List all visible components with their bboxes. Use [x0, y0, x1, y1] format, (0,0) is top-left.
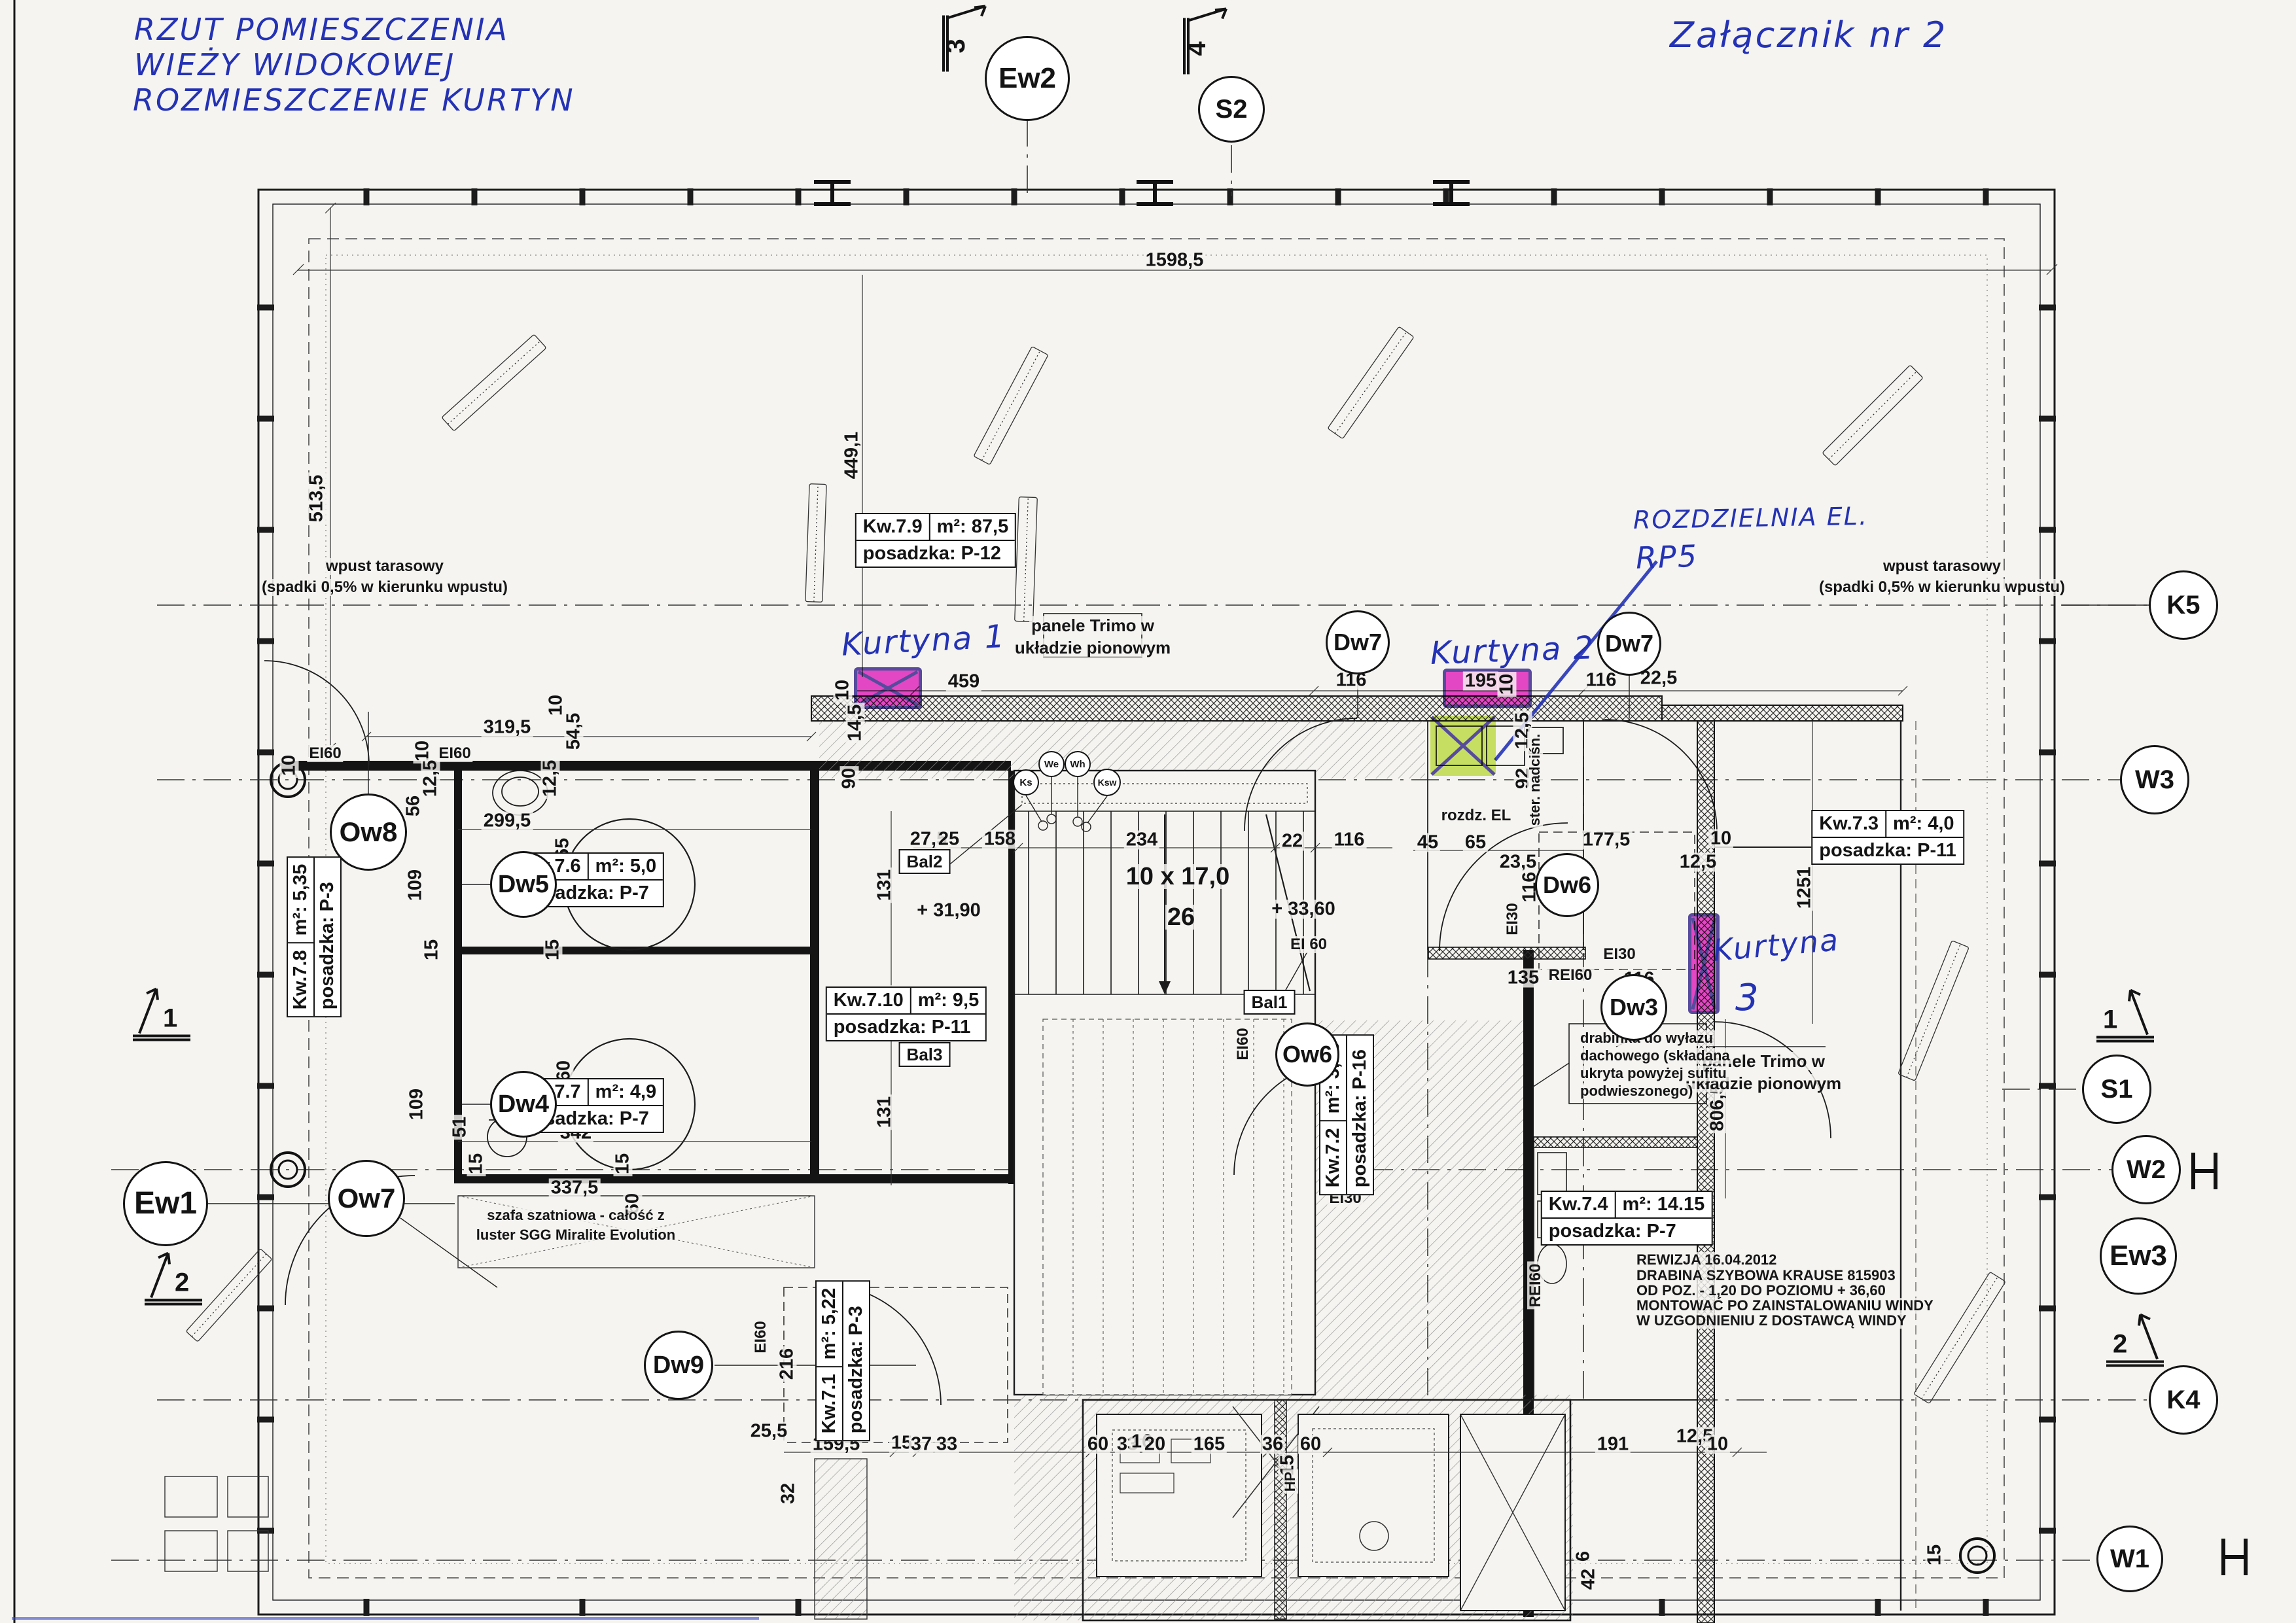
dim-label: 216: [778, 1346, 797, 1382]
handwritten-note: Kurtyna 2: [1430, 632, 1595, 669]
room-id: Kw.7.9: [857, 514, 930, 540]
room-label-row: Kw.7.7m²: 4,9: [515, 1079, 663, 1106]
axis-bubble: Dw7: [1597, 612, 1661, 676]
axis-bubble: Ew2: [985, 36, 1070, 121]
dim-label: 36: [1260, 1435, 1285, 1454]
annotation: EI30: [1601, 946, 1637, 963]
annotation: ster. nadciśn.: [1527, 732, 1543, 828]
dim-label: 20: [1142, 1435, 1167, 1454]
dim-label: 23,5: [1498, 853, 1538, 872]
dim-label: 15: [467, 1151, 486, 1176]
floor-plan-sheet: 1598,5513,5449,14591161951011622,5319,51…: [0, 0, 2296, 1623]
room-label-row: Kw.7.6m²: 5,0: [515, 854, 663, 881]
annotation: EI 60: [1288, 936, 1329, 953]
axis-bubble: W3: [2120, 745, 2189, 814]
dim-label: 160: [555, 1058, 574, 1094]
section-marker: 2: [134, 1243, 219, 1312]
dim-label: 10: [1498, 672, 1517, 697]
handwritten-note: RP5: [1635, 541, 1699, 573]
svg-text:1: 1: [2103, 1005, 2117, 1034]
handwritten-note: ROZDZIELNIA EL.: [1633, 504, 1869, 532]
room-label: Kw.7.7m²: 4,9posadzka: P-7: [514, 1078, 664, 1133]
room-label: Kw.7.4m²: 14.15posadzka: P-7: [1541, 1191, 1713, 1246]
room-label-row: Kw.7.2m²: 3,15: [1320, 1036, 1347, 1194]
dim-label: 65: [1463, 833, 1488, 852]
dim-label: 15: [423, 937, 442, 962]
dim-label: 56: [404, 794, 423, 818]
room-id: Kw.7.7: [515, 1079, 589, 1105]
dim-label: 42: [1580, 1567, 1598, 1592]
room-label: Kw.7.6m²: 5,0posadzka: P-7: [514, 852, 664, 907]
dim-label: 10: [547, 693, 566, 718]
section-marker: 3: [921, 3, 1000, 79]
annotation: EI60: [307, 745, 343, 762]
handwritten-note: 3: [1735, 980, 1760, 1017]
annotation: EI30: [1504, 901, 1521, 937]
dim-label: 319,5: [482, 718, 533, 737]
room-floor: posadzka: P-3: [843, 1282, 869, 1440]
annotation: rozdz. EL: [1439, 807, 1513, 824]
room-floor: posadzka: P-16: [1347, 1036, 1373, 1194]
dim-label: 158: [982, 830, 1017, 849]
section-marker: 2: [2089, 1304, 2174, 1373]
dim-label: 54,5: [565, 711, 584, 752]
room-id: Kw.7.2: [1320, 1120, 1346, 1194]
annotation: EI30: [1327, 1190, 1363, 1207]
dim-label: 165: [1192, 1435, 1227, 1454]
room-id: Kw.7.1: [817, 1366, 842, 1440]
dim-label: 513,5: [308, 473, 327, 525]
highlight-magenta: [1443, 669, 1532, 708]
room-area: m²: 5,35: [288, 858, 313, 943]
plan-linework: [0, 0, 2296, 1623]
dim-label: 109: [406, 867, 425, 903]
section-marker: 1: [2079, 980, 2164, 1049]
annotation: (spadki 0,5% w kierunku wpustu): [260, 579, 510, 596]
annotation: dachowego (składana: [1578, 1048, 1732, 1064]
dim-label: 14,5: [846, 703, 865, 743]
dim-label: 51: [451, 1115, 470, 1140]
dim-label: 12,5: [421, 758, 440, 799]
dim-label: 159,5: [811, 1435, 862, 1454]
dim-label: 60: [624, 1191, 643, 1216]
dim-label: 360: [287, 903, 306, 939]
annotation: panele Trimo w: [1700, 1052, 1827, 1070]
attachment-note: Załącznik nr 2: [1670, 14, 1947, 56]
dim-label: 195: [1463, 672, 1498, 691]
room-id: Kw.7.4: [1542, 1192, 1616, 1217]
handwritten-note: Kurtyna: [1712, 924, 1841, 966]
svg-text:2: 2: [2113, 1330, 2127, 1359]
dim-label: 6: [1574, 1549, 1593, 1563]
dim-label: 116: [1332, 831, 1367, 850]
handwritten-note: Kurtyna 1: [841, 621, 1006, 661]
annotation: REI60: [1547, 967, 1595, 984]
dim-label: 116: [1622, 970, 1657, 989]
dim-label: 135: [1506, 969, 1541, 988]
annotation: OD POZ. - 1,20 DO POZIOMU + 36,60: [1634, 1283, 1888, 1299]
dim-label: 26: [1165, 905, 1197, 930]
section-marker: 4: [1162, 5, 1241, 82]
annotation: ukryta powyżej sufitu: [1578, 1066, 1729, 1081]
annotation: EI60: [752, 1319, 769, 1355]
symbol-bubble: Ksw: [1093, 769, 1121, 796]
dim-label: 165: [554, 836, 573, 871]
symbol-bubble: Wh: [1065, 751, 1091, 777]
dim-label: 25: [936, 830, 961, 849]
dim-label: 25,5: [749, 1422, 789, 1441]
dim-label: 22: [1280, 832, 1305, 851]
dim-label: 116: [1334, 671, 1369, 690]
dim-label: 12,5: [1674, 1427, 1715, 1446]
sheet-title-line-1: RZUT POMIESZCZENIA: [134, 12, 509, 47]
axis-bubble: Dw7: [1326, 610, 1390, 674]
dim-label: 342: [558, 1124, 593, 1143]
dim-label: 131: [875, 867, 894, 903]
axis-bubble: Ow8: [330, 794, 407, 871]
dim-label: 10: [1705, 1435, 1730, 1454]
room-floor: posadzka: P-11: [1812, 838, 1963, 864]
annotation: Bal2: [899, 849, 951, 874]
dim-label: 27,5: [908, 830, 949, 849]
dim-label: 12,5: [1513, 710, 1532, 751]
room-area: m²: 87,5: [930, 514, 1016, 540]
highlight-magenta: [854, 667, 922, 709]
room-area: m²: 4,0: [1886, 811, 1960, 837]
room-label: Kw.7.8m²: 5,35posadzka: P-3: [287, 856, 342, 1017]
axis-bubbles: Ew2S2K5W3S1W2Ew3K4W1Ew1Ow8Ow7Dw5Dw4Dw9Dw…: [0, 0, 2296, 1623]
dimension-labels: 1598,5513,5449,14591161951011622,5319,51…: [0, 0, 2296, 1623]
annotation: (spadki 0,5% w kierunku wpustu): [1817, 579, 2067, 596]
room-id: Kw.7.10: [827, 988, 911, 1013]
dim-label: 116: [1521, 870, 1540, 905]
dim-label: 449,1: [843, 430, 862, 481]
section-marker: 1: [122, 979, 207, 1047]
room-floor: posadzka: P-11: [827, 1015, 985, 1040]
axis-bubble: W2: [2111, 1135, 2181, 1204]
dim-label: 18: [875, 985, 894, 1010]
dim-label: 806,5: [1708, 1082, 1727, 1134]
section-markers: 341212: [0, 0, 2296, 1623]
dim-label: 37: [909, 1435, 934, 1454]
dim-label: 15: [614, 1151, 633, 1176]
dim-label: 1251: [1795, 865, 1814, 911]
room-area: m²: 14.15: [1616, 1192, 1712, 1217]
dim-label: + 33,60: [1269, 900, 1337, 919]
axis-bubble: Dw4: [490, 1071, 557, 1138]
room-area: m²: 4,9: [589, 1079, 663, 1105]
handwritten-notes: Kurtyna 1Kurtyna 2Kurtyna3ROZDZIELNIA EL…: [0, 0, 2296, 1623]
annotation: Bal1: [1244, 990, 1296, 1015]
dim-label: 191: [1595, 1435, 1631, 1454]
dim-label: 337,5: [549, 1179, 601, 1198]
room-label-row: Kw.7.9m²: 87,5: [857, 514, 1015, 541]
axis-bubble: K4: [2149, 1365, 2218, 1435]
annotation: DRABINA SZYBOWA KRAUSE 815903: [1634, 1268, 1898, 1283]
dim-label: 15: [1279, 1453, 1298, 1478]
room-label: Kw.7.1m²: 5,22posadzka: P-3: [815, 1280, 870, 1441]
dim-label: 22,5: [1638, 669, 1679, 688]
annotation: panele Trimo w: [1029, 616, 1156, 635]
room-label-row: Kw.7.4m²: 14.15: [1542, 1192, 1712, 1219]
dim-label: 45: [1415, 833, 1440, 852]
axis-bubble: Ow7: [328, 1160, 405, 1237]
axis-bubble: S2: [1198, 76, 1265, 143]
dim-label: 15: [1926, 1543, 1945, 1567]
highlight-magenta: [1688, 913, 1720, 1014]
annotation: EI60: [436, 745, 472, 762]
axis-bubble: Ew1: [123, 1161, 208, 1246]
dim-label: 10: [834, 678, 853, 703]
annotation: podwieszonego): [1578, 1083, 1695, 1099]
room-label-row: Kw.7.1m²: 5,22: [817, 1282, 843, 1440]
axis-bubble: S1: [2082, 1055, 2151, 1124]
room-label-row: Kw.7.10m²: 9,5: [827, 988, 985, 1015]
highlighter-marks: [0, 0, 2296, 1623]
dim-label: 12,5: [1678, 853, 1718, 872]
symbol-bubble: We: [1038, 751, 1065, 777]
dim-label: 60: [1298, 1435, 1323, 1454]
dim-label: 33: [1115, 1435, 1140, 1454]
dim-label: 16: [1129, 1433, 1154, 1452]
room-label: Kw.7.3m²: 4,0posadzka: P-11: [1811, 810, 1964, 865]
axis-bubble: W1: [2096, 1526, 2163, 1592]
dim-label: 10: [414, 739, 433, 763]
dim-label: 10 x 17,0: [1124, 864, 1231, 889]
dim-label: 10: [280, 753, 299, 778]
annotation: Bal3: [899, 1042, 951, 1067]
annotation: układzie pionowym: [1013, 638, 1173, 657]
room-floor: posadzka: P-7: [1542, 1219, 1712, 1244]
annotation: szafa szatniowa - całość z: [485, 1208, 666, 1223]
sheet-title-line-2: WIEŻY WIDOKOWEJ: [134, 47, 455, 82]
annotation: EI60: [1677, 1204, 1694, 1240]
annotation: wpust tarasowy: [1881, 558, 2003, 575]
annotation: wpust tarasowy: [324, 558, 446, 575]
dim-label: 60: [1086, 1435, 1110, 1454]
dim-label: 15: [544, 937, 563, 962]
annotation: luster SGG Miralite Evolution: [474, 1227, 677, 1243]
svg-text:2: 2: [175, 1268, 189, 1297]
annotation: REI60: [1527, 1262, 1544, 1310]
annotation: układzie pionowym: [1684, 1074, 1843, 1092]
room-floor: posadzka: P-3: [315, 858, 340, 1016]
axis-bubble: Dw5: [490, 851, 557, 918]
dim-label: + 31,90: [915, 901, 983, 920]
dim-label: 32: [779, 1481, 798, 1506]
axis-bubble: Ew3: [2100, 1217, 2177, 1295]
dim-label: 15: [374, 810, 398, 829]
dim-label: 1598,5: [1144, 251, 1206, 270]
sheet-title-line-3: ROZMIESZCZENIE KURTYN: [133, 82, 575, 118]
room-label: Kw.7.10m²: 9,5posadzka: P-11: [826, 986, 987, 1041]
dim-label: 116: [1584, 671, 1619, 690]
dim-label: 131: [875, 1094, 894, 1130]
axis-bubble: Dw9: [644, 1331, 713, 1400]
room-area: m²: 5,22: [817, 1282, 842, 1367]
room-area: m²: 3,15: [1320, 1036, 1346, 1121]
room-id: Kw.7.8: [288, 942, 313, 1016]
axis-bubble: Dw3: [1600, 974, 1667, 1041]
room-label-row: Kw.7.8m²: 5,35: [288, 858, 315, 1016]
annotation: HP: [1282, 1470, 1298, 1494]
highlight-green: [1430, 716, 1496, 776]
dim-label: 177,5: [1581, 831, 1633, 850]
annotation: W UZGODNIENIU Z DOSTAWCĄ WINDY: [1634, 1313, 1909, 1329]
dim-label: 299,5: [482, 812, 533, 831]
room-floor: posadzka: P-7: [515, 881, 663, 906]
svg-text:4: 4: [1182, 41, 1211, 56]
annotation: REWIZJA 16.04.2012: [1634, 1252, 1778, 1268]
annotation: EI60: [1235, 1026, 1252, 1062]
annotation: drabinka do wyłazu: [1578, 1030, 1715, 1046]
dim-label: 92: [1514, 766, 1533, 791]
room-label: Kw.7.9m²: 87,5posadzka: P-12: [855, 513, 1016, 568]
room-label: Kw.7.2m²: 3,15posadzka: P-16: [1319, 1034, 1374, 1195]
dim-label: 10: [1708, 829, 1733, 848]
room-label-row: Kw.7.3m²: 4,0: [1812, 811, 1963, 838]
axis-bubble: K5: [2149, 570, 2218, 640]
axis-bubble: Dw6: [1535, 853, 1599, 917]
room-floor: posadzka: P-7: [515, 1106, 663, 1132]
svg-text:1: 1: [163, 1004, 177, 1033]
dim-label: 12,5: [541, 758, 560, 799]
dim-label: 33: [934, 1435, 959, 1454]
annotation-labels: EI60EI60EI 60EI60EI30EI30EI30REI60REI60E…: [0, 0, 2296, 1623]
room-floor: posadzka: P-12: [857, 541, 1015, 567]
annotation: MONTOWAĆ PO ZAINSTALOWANIU WINDY: [1634, 1298, 1935, 1314]
svg-text:3: 3: [942, 39, 970, 53]
dim-label: 234: [1124, 831, 1159, 850]
dim-label: 15: [889, 1434, 914, 1453]
dim-label: 459: [946, 672, 981, 691]
room-labels: Kw.7.9m²: 87,5posadzka: P-12Kw.7.6m²: 5,…: [0, 0, 2296, 1623]
room-id: Kw.7.6: [515, 854, 589, 879]
dim-label: 90: [840, 766, 859, 791]
dim-label: 109: [408, 1087, 427, 1122]
room-area: m²: 5,0: [589, 854, 663, 879]
axis-bubble: Ow6: [1275, 1022, 1339, 1087]
room-area: m²: 9,5: [911, 988, 985, 1013]
symbol-bubble: Ks: [1013, 769, 1039, 795]
room-id: Kw.7.3: [1812, 811, 1886, 837]
